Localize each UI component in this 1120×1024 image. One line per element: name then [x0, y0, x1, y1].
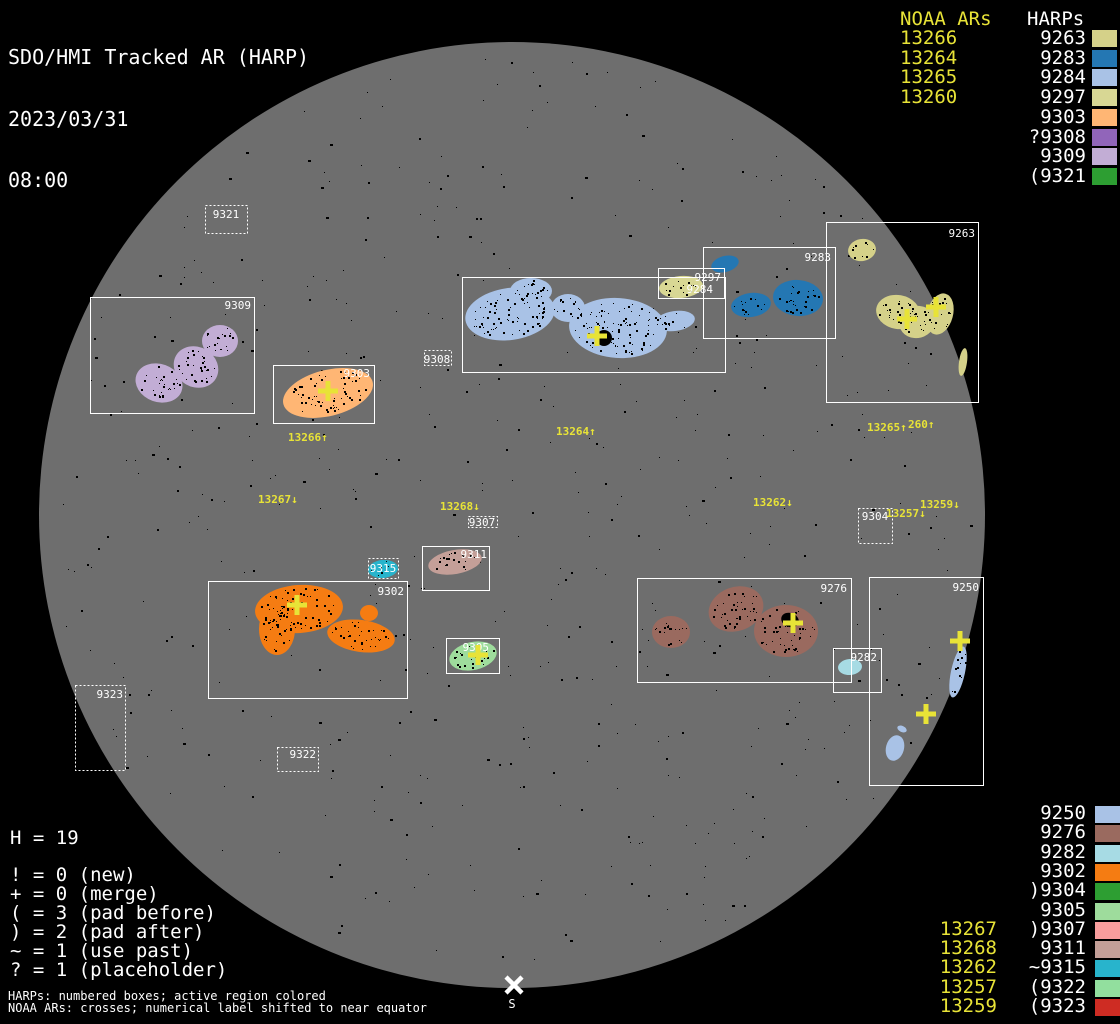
time-label: 08:00: [8, 170, 309, 191]
legend-swatch-9308: [1092, 129, 1117, 146]
noaa-label-13266: 13266↑: [288, 431, 328, 444]
legend-harp-9263: 9263: [1014, 29, 1086, 48]
legend-swatch-9315: [1095, 960, 1120, 977]
header: SDO/HMI Tracked AR (HARP) 2023/03/31 08:…: [8, 6, 309, 232]
noaa-label-13264: 13264↑: [556, 425, 596, 438]
legend-swatch-9309: [1092, 148, 1117, 165]
legend-harp-9305: 9305: [1010, 901, 1086, 920]
harp-label-9307: 9307: [469, 516, 496, 529]
noaa-label-13259: 13259↓: [920, 498, 960, 511]
harp-label-9276: 9276: [821, 582, 848, 595]
harp-label-9303: 9303: [344, 367, 371, 380]
legend-harp-9276: 9276: [1010, 823, 1086, 842]
legend-harp-9304: )9304: [1010, 881, 1086, 900]
legend-noaa-13264: 13264: [900, 49, 957, 68]
legend-swatch-9282: [1095, 845, 1120, 862]
legend-harp-9321: (9321: [1014, 167, 1086, 186]
legend-swatch-9276: [1095, 825, 1120, 842]
legend-harp-9250: 9250: [1010, 804, 1086, 823]
harp-count: H = 19: [10, 829, 79, 848]
harp-label-9283: 9283: [805, 251, 832, 264]
legend-noaa-13267: 13267: [933, 920, 997, 939]
harp-label-9284: 9284: [687, 283, 714, 296]
harp-label-9263: 9263: [949, 227, 976, 240]
legend-harp-9307: )9307: [1010, 920, 1086, 939]
legend-swatch-9263: [1092, 30, 1117, 47]
harp-label-9315: 9315: [370, 562, 397, 575]
date-label: 2023/03/31: [8, 109, 309, 130]
legend-swatch-9322: [1095, 980, 1120, 997]
south-label: S: [508, 997, 515, 1011]
noaa-label-13268: 13268↓: [440, 500, 480, 513]
legend-swatch-9304: [1095, 883, 1120, 900]
legend-harp-9284: 9284: [1014, 68, 1086, 87]
legend-noaa-13265: 13265: [900, 68, 957, 87]
flag-line-3: ) = 2 (pad after): [10, 923, 204, 942]
legend-harp-9283: 9283: [1014, 49, 1086, 68]
harp-label-9309: 9309: [225, 299, 252, 312]
harp-label-9308: 9308: [424, 353, 451, 366]
legend-swatch-9250: [1095, 806, 1120, 823]
legend-swatch-9311: [1095, 941, 1120, 958]
legend-swatch-9297: [1092, 89, 1117, 106]
harp-label-9304: 9304: [862, 510, 889, 523]
harp-label-9322: 9322: [290, 748, 317, 761]
footnote-noaa: NOAA ARs: crosses; numerical label shift…: [8, 1002, 427, 1014]
harp-label-9323: 9323: [97, 688, 124, 701]
harp-full-disk-view: 9263928392849297930393089309932192509276…: [0, 0, 1120, 1024]
legend-noaa-13266: 13266: [900, 29, 957, 48]
legend-harp-9282: 9282: [1010, 843, 1086, 862]
harp-label-9297: 9297: [695, 271, 722, 284]
flag-line-4: ~ = 1 (use past): [10, 942, 193, 961]
legend-swatch-9321: [1092, 168, 1117, 185]
legend-swatch-9302: [1095, 864, 1120, 881]
noaa-label-13267: 13267↓: [258, 493, 298, 506]
legend-harp-9309: 9309: [1014, 147, 1086, 166]
app-title: SDO/HMI Tracked AR (HARP): [8, 47, 309, 68]
legend-harp-9303: 9303: [1014, 108, 1086, 127]
noaa-label-13262: 13262↓: [753, 496, 793, 509]
legend-swatch-9307: [1095, 922, 1120, 939]
legend-swatch-9303: [1092, 109, 1117, 126]
harp-label-9302: 9302: [378, 585, 405, 598]
legend-swatch-9284: [1092, 69, 1117, 86]
legend-harp-9308: ?9308: [1014, 128, 1086, 147]
flag-line-2: ( = 3 (pad before): [10, 904, 216, 923]
legend-noaa-13257: 13257: [933, 978, 997, 997]
legend-swatch-9323: [1095, 999, 1120, 1016]
legend-harp-9311: 9311: [1010, 939, 1086, 958]
harp-label-9250: 9250: [953, 581, 980, 594]
noaa-label-13265: 13265↑: [867, 421, 907, 434]
harp-label-9282: 9282: [851, 651, 878, 664]
legend-harp-9323: (9323: [1010, 997, 1086, 1016]
flag-line-5: ? = 1 (placeholder): [10, 961, 227, 980]
legend-swatch-9283: [1092, 50, 1117, 67]
legend-noaa-13259: 13259: [933, 997, 997, 1016]
legend-harp-9302: 9302: [1010, 862, 1086, 881]
legend-harp-9315: ~9315: [1010, 958, 1086, 977]
legend-noaa-13268: 13268: [933, 939, 997, 958]
legend-harp-9322: (9322: [1010, 978, 1086, 997]
legend-noaa-13262: 13262: [933, 958, 997, 977]
harp-label-9311: 9311: [461, 548, 488, 561]
legend-harp-9297: 9297: [1014, 88, 1086, 107]
legend-swatch-9305: [1095, 903, 1120, 920]
legend-noaa-13260: 13260: [900, 88, 957, 107]
noaa-label-260: 260↑: [908, 418, 935, 431]
